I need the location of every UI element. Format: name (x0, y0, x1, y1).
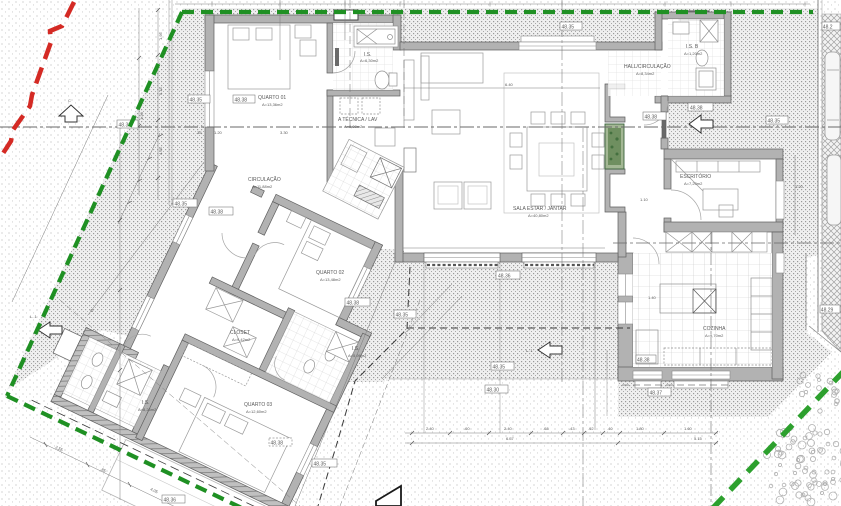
svg-text:A=6,30m2: A=6,30m2 (360, 58, 379, 63)
svg-text:CIRCULAÇÃO: CIRCULAÇÃO (248, 176, 281, 183)
svg-text:A TÉCNICA / LAV: A TÉCNICA / LAV (338, 116, 378, 123)
svg-text:COZINHA: COZINHA (703, 326, 726, 332)
svg-text:2.40: 2.40 (426, 426, 435, 431)
svg-text:QUARTO 02: QUARTO 02 (316, 270, 344, 276)
svg-text:48.29: 48.29 (821, 308, 834, 314)
svg-text:A=9,70m2: A=9,70m2 (705, 333, 724, 338)
svg-text:SALA ESTAR / JANTAR: SALA ESTAR / JANTAR (513, 206, 567, 212)
svg-text:48.38: 48.38 (235, 98, 248, 104)
svg-text:6.40: 6.40 (505, 82, 514, 87)
svg-text:48.30: 48.30 (487, 388, 500, 394)
svg-text:QUARTO 03: QUARTO 03 (244, 402, 272, 408)
svg-text:48.38: 48.38 (690, 106, 703, 112)
svg-text:5.15: 5.15 (694, 436, 703, 441)
svg-text:A=11,88m2: A=11,88m2 (252, 184, 273, 189)
svg-text:.43: .43 (569, 426, 575, 431)
svg-text:48.35: 48.35 (190, 98, 203, 104)
svg-text:.35: .35 (196, 130, 202, 135)
svg-text:A=8,34m2: A=8,34m2 (636, 71, 655, 76)
svg-text:48.35: 48.35 (493, 365, 506, 371)
svg-text:48.38: 48.38 (645, 115, 658, 121)
svg-text:48.38: 48.38 (271, 441, 284, 447)
svg-text:48.38: 48.38 (211, 210, 224, 216)
svg-text:48.35: 48.35 (175, 202, 188, 208)
svg-text:A=12,60m2: A=12,60m2 (246, 409, 267, 414)
svg-text:48.38: 48.38 (347, 301, 360, 307)
svg-text:1.80: 1.80 (636, 426, 645, 431)
svg-text:1.10: 1.10 (640, 197, 649, 202)
svg-text:48.35: 48.35 (562, 25, 575, 31)
svg-text:48.38: 48.38 (637, 358, 650, 364)
svg-text:48.36: 48.36 (164, 498, 177, 504)
svg-text:48.37: 48.37 (650, 391, 663, 397)
svg-text:A=1,20m2: A=1,20m2 (684, 51, 703, 56)
svg-text:1.20: 1.20 (795, 184, 804, 189)
svg-text:1.20: 1.20 (139, 111, 144, 120)
svg-text:CLOSET: CLOSET (230, 330, 250, 336)
svg-text:A=9,42m2: A=9,42m2 (232, 337, 251, 342)
svg-text:1.95: 1.95 (158, 31, 163, 40)
svg-text:A=9,00m2: A=9,00m2 (344, 124, 363, 129)
svg-text:I.S.: I.S. (142, 400, 150, 406)
svg-text:48.35: 48.35 (768, 119, 781, 125)
svg-text:ESCRITÓRIO: ESCRITÓRIO (680, 173, 711, 180)
svg-text:L..1: L..1 (526, 348, 533, 353)
svg-text:4.65: 4.65 (158, 146, 163, 155)
svg-text:.40: .40 (607, 426, 613, 431)
svg-text:I.S. B: I.S. B (686, 44, 699, 50)
svg-text:1.60: 1.60 (684, 426, 693, 431)
svg-text:3.30: 3.30 (280, 130, 289, 135)
svg-text:A=13,36m2: A=13,36m2 (262, 102, 283, 107)
svg-text:.60: .60 (464, 426, 470, 431)
svg-text:.92: .92 (588, 426, 594, 431)
svg-text:48.36: 48.36 (498, 274, 511, 280)
svg-text:A=7,20m2: A=7,20m2 (684, 181, 703, 186)
svg-text:A=8,26m2: A=8,26m2 (138, 407, 157, 412)
svg-text:A=40,80m2: A=40,80m2 (528, 213, 549, 218)
svg-text:I.S.: I.S. (352, 346, 360, 352)
svg-text:1.40: 1.40 (648, 295, 657, 300)
svg-text:5.15: 5.15 (158, 86, 163, 95)
svg-text:L..1: L..1 (30, 314, 37, 319)
svg-text:HALL/CIRCULAÇÃO: HALL/CIRCULAÇÃO (624, 63, 671, 70)
svg-text:48.35: 48.35 (314, 462, 327, 468)
svg-text:.68: .68 (543, 426, 549, 431)
svg-text:6.57: 6.57 (506, 436, 515, 441)
svg-text:C: C (68, 98, 71, 103)
svg-text:2.40: 2.40 (504, 426, 513, 431)
svg-text:QUARTO 01: QUARTO 01 (258, 95, 286, 101)
svg-text:48.2: 48.2 (823, 25, 833, 31)
svg-text:48.35: 48.35 (396, 313, 409, 319)
svg-text:1.20: 1.20 (214, 130, 223, 135)
svg-text:A=5,96m2: A=5,96m2 (348, 353, 367, 358)
svg-text:A=13,48m2: A=13,48m2 (320, 277, 341, 282)
